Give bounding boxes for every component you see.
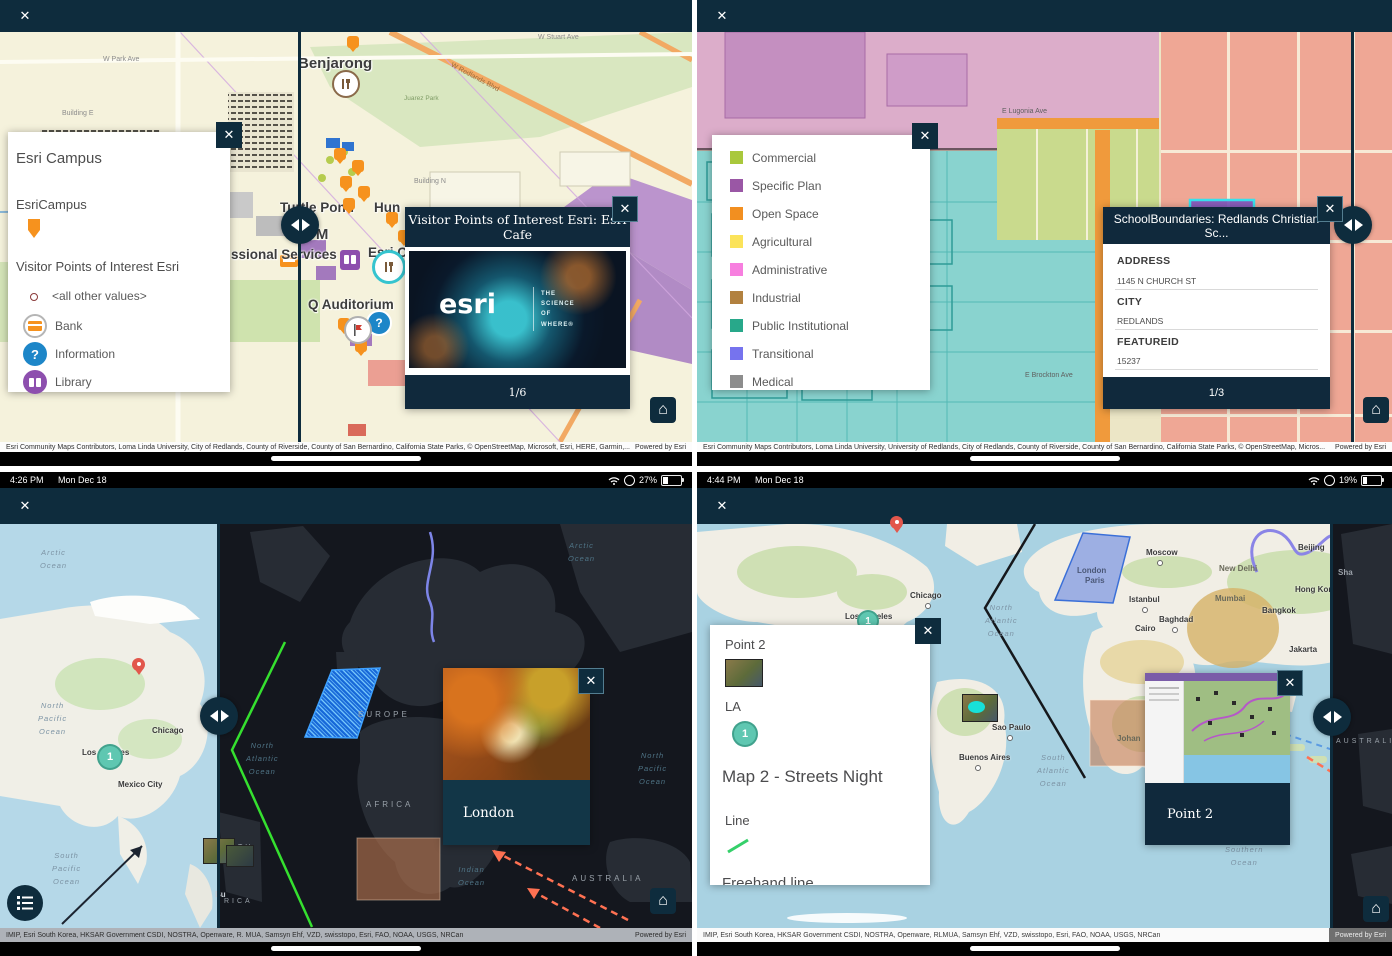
legend-chip: [730, 263, 743, 276]
city-label: Sao Paulo: [992, 723, 1031, 732]
legend-item: Medical: [752, 375, 793, 389]
esri-cafe-marker[interactable]: [372, 250, 406, 284]
field-divider: [1115, 369, 1318, 370]
attribution-bar: Esri Community Maps Contributors, Loma L…: [0, 442, 692, 452]
panel-entry-point2[interactable]: Point 2: [725, 637, 765, 652]
ocean-label: North Pacific Ocean: [638, 750, 667, 788]
home-indicator-bar: [697, 942, 1392, 956]
library-marker[interactable]: [340, 250, 360, 270]
continent-label: EUROPE: [358, 710, 410, 719]
powered-by-esri[interactable]: Powered by Esri: [635, 444, 686, 451]
attribution-bar: Esri Community Maps Contributors, Loma L…: [697, 442, 1392, 452]
field-label: FEATUREID: [1117, 336, 1179, 348]
poi-pin[interactable]: [358, 186, 370, 198]
home-button[interactable]: ⌂: [1363, 896, 1389, 922]
ocean-label: South Atlantic Ocean: [1037, 752, 1070, 790]
flag-marker[interactable]: [344, 316, 372, 344]
popup-attachment-image[interactable]: [1145, 673, 1290, 783]
city-label: London: [1077, 566, 1106, 575]
restaurant-icon[interactable]: [332, 70, 360, 98]
orange-pin-icon: [26, 218, 42, 244]
panel-entry-freehand[interactable]: Freehand line: [722, 875, 814, 885]
popup-close-icon[interactable]: ✕: [1277, 670, 1303, 696]
ocean-label: Arctic Ocean: [568, 540, 595, 566]
legend-item-library: Library: [55, 375, 92, 389]
park-label: Juarez Park: [404, 95, 439, 102]
top-navbar: [697, 488, 1392, 524]
street-label: E Brockton Ave: [1025, 372, 1073, 379]
home-indicator[interactable]: [970, 946, 1120, 951]
legend-chip: [730, 235, 743, 248]
field-divider: [1115, 289, 1318, 290]
popup-title: Visitor Points of Interest Esri: Esri Ca…: [405, 207, 630, 247]
legend-item: Transitional: [752, 347, 814, 361]
panel-entry-la[interactable]: LA: [725, 699, 741, 714]
entry-cluster-symbol: 1: [732, 721, 758, 747]
bank-icon: [23, 314, 47, 338]
popup-title: SchoolBoundaries: Redlands Christian Sc.…: [1103, 207, 1330, 244]
street-label: E Lugonia Ave: [1002, 108, 1047, 115]
other-values-symbol: [30, 293, 38, 301]
attribution-bar: IMIP, Esri South Korea, HKSAR Government…: [697, 928, 1392, 942]
feature-popup: Visitor Points of Interest Esri: Esri Ca…: [405, 207, 630, 409]
legend-chip: [730, 319, 743, 332]
city-label: Moscow: [1146, 548, 1178, 557]
attribution-text: IMIP, Esri South Korea, HKSAR Government…: [6, 932, 463, 939]
city-dot: [925, 603, 931, 609]
quadrant-top-right: ✕: [697, 0, 1392, 466]
wifi-icon: [608, 476, 620, 485]
legend-item: Specific Plan: [752, 179, 821, 193]
continent-label: AUSTRALIA: [1336, 738, 1392, 745]
field-label: CITY: [1117, 296, 1142, 308]
city-label: Beijing: [1298, 543, 1325, 552]
field-label: ADDRESS: [1117, 255, 1170, 267]
ocean-label: North Atlantic Ocean: [985, 602, 1018, 640]
feature-popup: SchoolBoundaries: Redlands Christian Sc.…: [1103, 207, 1330, 409]
legend-chip: [730, 291, 743, 304]
city-label: Baghdad: [1159, 615, 1193, 624]
popup-attachment-image[interactable]: esri THE SCIENCE OF WHERE®: [409, 251, 626, 368]
close-window-icon[interactable]: ✕: [709, 493, 735, 519]
legend-panel: Commercial Specific Plan Open Space Agri…: [712, 135, 930, 390]
home-indicator-bar: [697, 452, 1392, 466]
black-arrow: [50, 832, 210, 932]
top-navbar: [697, 0, 1392, 32]
quadrant-bottom-right: 4:44 PM Mon Dec 18 19% ✕: [697, 472, 1392, 956]
screenshot-grid: ✕: [0, 0, 1392, 956]
city-label: Paris: [1085, 576, 1105, 585]
city-label: Jakarta: [1289, 645, 1317, 654]
city-dot: [975, 765, 981, 771]
line-symbol: [726, 837, 752, 855]
rotation-lock-icon: [624, 475, 635, 486]
ocean-label: Indian Ocean: [458, 864, 485, 890]
poi-pin[interactable]: [347, 36, 359, 48]
city-dot: [1142, 607, 1148, 613]
attachment-thumbnail[interactable]: [226, 845, 254, 867]
legend-item-information: Information: [55, 347, 115, 361]
legend-item: Agricultural: [752, 235, 812, 249]
panel-entry-line[interactable]: Line: [725, 813, 750, 828]
home-indicator[interactable]: [271, 456, 421, 461]
legend-item-other: <all other values>: [52, 289, 147, 303]
cluster-marker[interactable]: 1: [97, 744, 123, 770]
poi-pin[interactable]: [334, 148, 346, 160]
field-value: REDLANDS: [1117, 316, 1163, 326]
status-date: Mon Dec 18: [755, 475, 804, 485]
legend-layer-title: EsriCampus: [16, 197, 87, 212]
status-bar: 4:26 PM Mon Dec 18 27%: [0, 472, 692, 488]
panel-close-icon[interactable]: ✕: [915, 618, 941, 644]
poi-pin[interactable]: [386, 212, 398, 224]
city-dot: [1157, 560, 1163, 566]
street-label: W Park Ave: [103, 56, 139, 63]
city-label: Johan: [1117, 734, 1141, 743]
top-navbar: [0, 0, 692, 32]
swipe-handle[interactable]: [281, 206, 319, 244]
city-dot: [1172, 627, 1178, 633]
legend-chip: [730, 347, 743, 360]
attachment-thumbnail[interactable]: [962, 694, 998, 722]
wifi-icon: [1308, 476, 1320, 485]
city-label: Sha: [1338, 568, 1353, 577]
building-label: Building N: [414, 178, 446, 185]
close-window-icon[interactable]: ✕: [12, 493, 38, 519]
poi-pin[interactable]: [340, 176, 352, 188]
legend-panel: Esri Campus EsriCampus Visitor Points of…: [8, 132, 230, 392]
feature-popup: Point 2: [1145, 673, 1290, 845]
building-label: Building E: [62, 110, 94, 117]
legend-item-bank: Bank: [55, 319, 82, 333]
legend-close-icon[interactable]: ✕: [912, 123, 938, 149]
attribution-text: Esri Community Maps Contributors, Loma L…: [703, 444, 1325, 451]
legend-chip: [730, 179, 743, 192]
status-date: Mon Dec 18: [58, 475, 107, 485]
home-indicator[interactable]: [970, 456, 1120, 461]
popup-title: Point 2: [1145, 783, 1290, 845]
status-time: 4:26 PM: [10, 475, 44, 485]
swipe-handle[interactable]: [1313, 698, 1351, 736]
legend-item: Administrative: [752, 263, 827, 277]
legend-chip: [730, 207, 743, 220]
poi-pin[interactable]: [343, 198, 355, 210]
information-icon: ?: [23, 342, 47, 366]
ocean-label: Arctic Ocean: [40, 547, 67, 573]
red-pin[interactable]: [132, 658, 145, 671]
city-label: Chicago: [152, 726, 184, 735]
home-indicator[interactable]: [271, 946, 421, 951]
popup-close-icon[interactable]: ✕: [578, 668, 604, 694]
legend-sublayer-title: Visitor Points of Interest Esri: [16, 259, 179, 274]
field-value: 1145 N CHURCH ST: [1117, 276, 1196, 286]
popup-close-icon[interactable]: ✕: [612, 196, 638, 222]
powered-by-esri[interactable]: Powered by Esri: [1329, 928, 1392, 942]
poi-pin[interactable]: [352, 160, 364, 172]
home-indicator-bar: [0, 452, 692, 466]
city-label: Mumbai: [1215, 594, 1245, 603]
legend-chip: [730, 151, 743, 164]
powered-by-esri[interactable]: Powered by Esri: [635, 932, 686, 939]
close-window-icon[interactable]: ✕: [12, 3, 38, 29]
contents-panel: Point 2 LA 1 Map 2 - Streets Night Line …: [710, 625, 930, 885]
street-label: W Stuart Ave: [538, 34, 579, 41]
battery-percent: 19%: [1339, 475, 1357, 485]
attribution-text: IMIP, Esri South Korea, HKSAR Government…: [703, 932, 1160, 939]
red-pin[interactable]: [890, 516, 903, 529]
city-label: Buenos Aires: [959, 753, 1010, 762]
city-label: Bangkok: [1262, 606, 1296, 615]
home-button[interactable]: ⌂: [1363, 397, 1389, 423]
status-time: 4:44 PM: [707, 475, 741, 485]
legend-item: Public Institutional: [752, 319, 849, 333]
legend-item: Commercial: [752, 151, 816, 165]
legend-chip: [730, 375, 743, 388]
feature-popup: London: [443, 668, 590, 845]
esri-logo: esri: [439, 289, 496, 320]
legend-title: Esri Campus: [16, 150, 102, 167]
powered-by-esri[interactable]: Powered by Esri: [1335, 444, 1386, 451]
panel-map-title: Map 2 - Streets Night: [722, 767, 883, 787]
home-indicator-bar: [0, 942, 692, 956]
quadrant-top-left: ✕: [0, 0, 692, 466]
rotation-lock-icon: [1324, 475, 1335, 486]
popup-pager[interactable]: 1/3: [1103, 377, 1330, 409]
continent-label: AUSTRALIA: [572, 874, 643, 883]
top-navbar: [0, 488, 692, 524]
home-button[interactable]: ⌂: [650, 888, 676, 914]
popup-title: London: [443, 780, 590, 845]
city-label: Mexico City: [118, 780, 162, 789]
city-dot: [1007, 735, 1013, 741]
home-button[interactable]: ⌂: [650, 397, 676, 423]
library-icon: [23, 370, 47, 394]
attribution-text: Esri Community Maps Contributors, Loma L…: [6, 444, 630, 451]
continent-label-fragment: RICA: [224, 898, 253, 905]
field-divider: [1115, 329, 1318, 330]
legend-item: Industrial: [752, 291, 801, 305]
battery-icon: [661, 475, 682, 486]
status-bar: 4:44 PM Mon Dec 18 19%: [697, 472, 1392, 488]
attribution-bar: IMIP, Esri South Korea, HKSAR Government…: [0, 928, 692, 942]
field-value: 15237: [1117, 356, 1141, 366]
ocean-label: North Atlantic Ocean: [246, 740, 279, 778]
esri-tagline: THE SCIENCE OF WHERE®: [541, 289, 575, 330]
legend-item: Open Space: [752, 207, 819, 221]
battery-percent: 27%: [639, 475, 657, 485]
city-label: Chicago: [910, 591, 942, 600]
city-label: New Delhi: [1219, 564, 1257, 573]
battery-icon: [1361, 475, 1382, 486]
swipe-handle[interactable]: [200, 697, 238, 735]
quadrant-bottom-left: 4:26 PM Mon Dec 18 27% ✕ Arctic Ocean No…: [0, 472, 692, 956]
entry-thumbnail[interactable]: [725, 659, 763, 687]
legend-close-icon[interactable]: ✕: [216, 122, 242, 148]
ocean-label: Southern Ocean: [1225, 844, 1263, 870]
city-label: Cairo: [1135, 624, 1155, 633]
legend-button[interactable]: [7, 885, 43, 921]
logo-divider: [533, 287, 534, 331]
popup-close-icon[interactable]: ✕: [1317, 196, 1343, 222]
map-label-services: ssional Services: [231, 247, 337, 262]
popup-pager[interactable]: 1/6: [405, 375, 630, 409]
city-label: Istanbul: [1129, 595, 1160, 604]
close-window-icon[interactable]: ✕: [709, 3, 735, 29]
popup-attachment-image[interactable]: [443, 668, 590, 780]
ocean-label: North Pacific Ocean: [38, 700, 67, 738]
map-label-benjarong: Benjarong: [298, 55, 372, 72]
continent-label: AFRICA: [366, 800, 413, 809]
